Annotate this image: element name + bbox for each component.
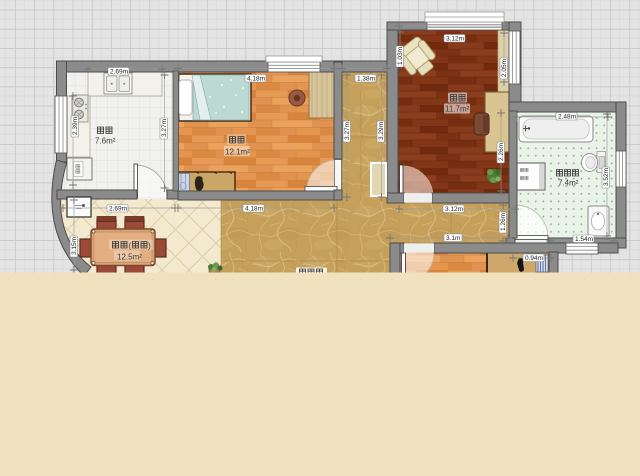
svg-text:11.7m²: 11.7m² [445,105,470,114]
svg-text:1.26m: 1.26m [500,213,507,231]
svg-text:2.26m: 2.26m [498,143,505,161]
svg-text:3.15m: 3.15m [71,237,78,255]
svg-text:0.94m: 0.94m [525,255,543,262]
svg-text:4.18m: 4.18m [245,206,263,213]
svg-text:3.1m: 3.1m [446,235,460,242]
svg-text:1.03m: 1.03m [397,47,404,65]
svg-text:2.69m: 2.69m [110,69,128,76]
svg-text:2.39m: 2.39m [72,117,79,135]
svg-text:3.29m: 3.29m [378,122,385,140]
svg-text:3.52m: 3.52m [603,168,610,186]
svg-text:): ) [148,242,151,251]
svg-text:1.38m: 1.38m [357,76,375,83]
svg-text:1.54m: 1.54m [575,236,593,243]
svg-text:(: ( [129,242,132,251]
svg-text:3.12m: 3.12m [445,206,463,213]
svg-text:3.27m: 3.27m [161,119,168,137]
svg-text:3.12m: 3.12m [446,36,464,43]
svg-text:12.1m²: 12.1m² [225,148,250,157]
svg-text:12.5m²: 12.5m² [117,253,142,262]
svg-text:2.05m: 2.05m [501,59,508,77]
svg-text:4.18m: 4.18m [247,76,265,83]
svg-text:3.27m: 3.27m [344,122,351,140]
svg-text:2.69m: 2.69m [109,206,127,213]
svg-text:2.48m: 2.48m [558,114,576,121]
svg-text:7.4m²: 7.4m² [558,179,579,188]
svg-text:7.6m²: 7.6m² [95,137,116,146]
